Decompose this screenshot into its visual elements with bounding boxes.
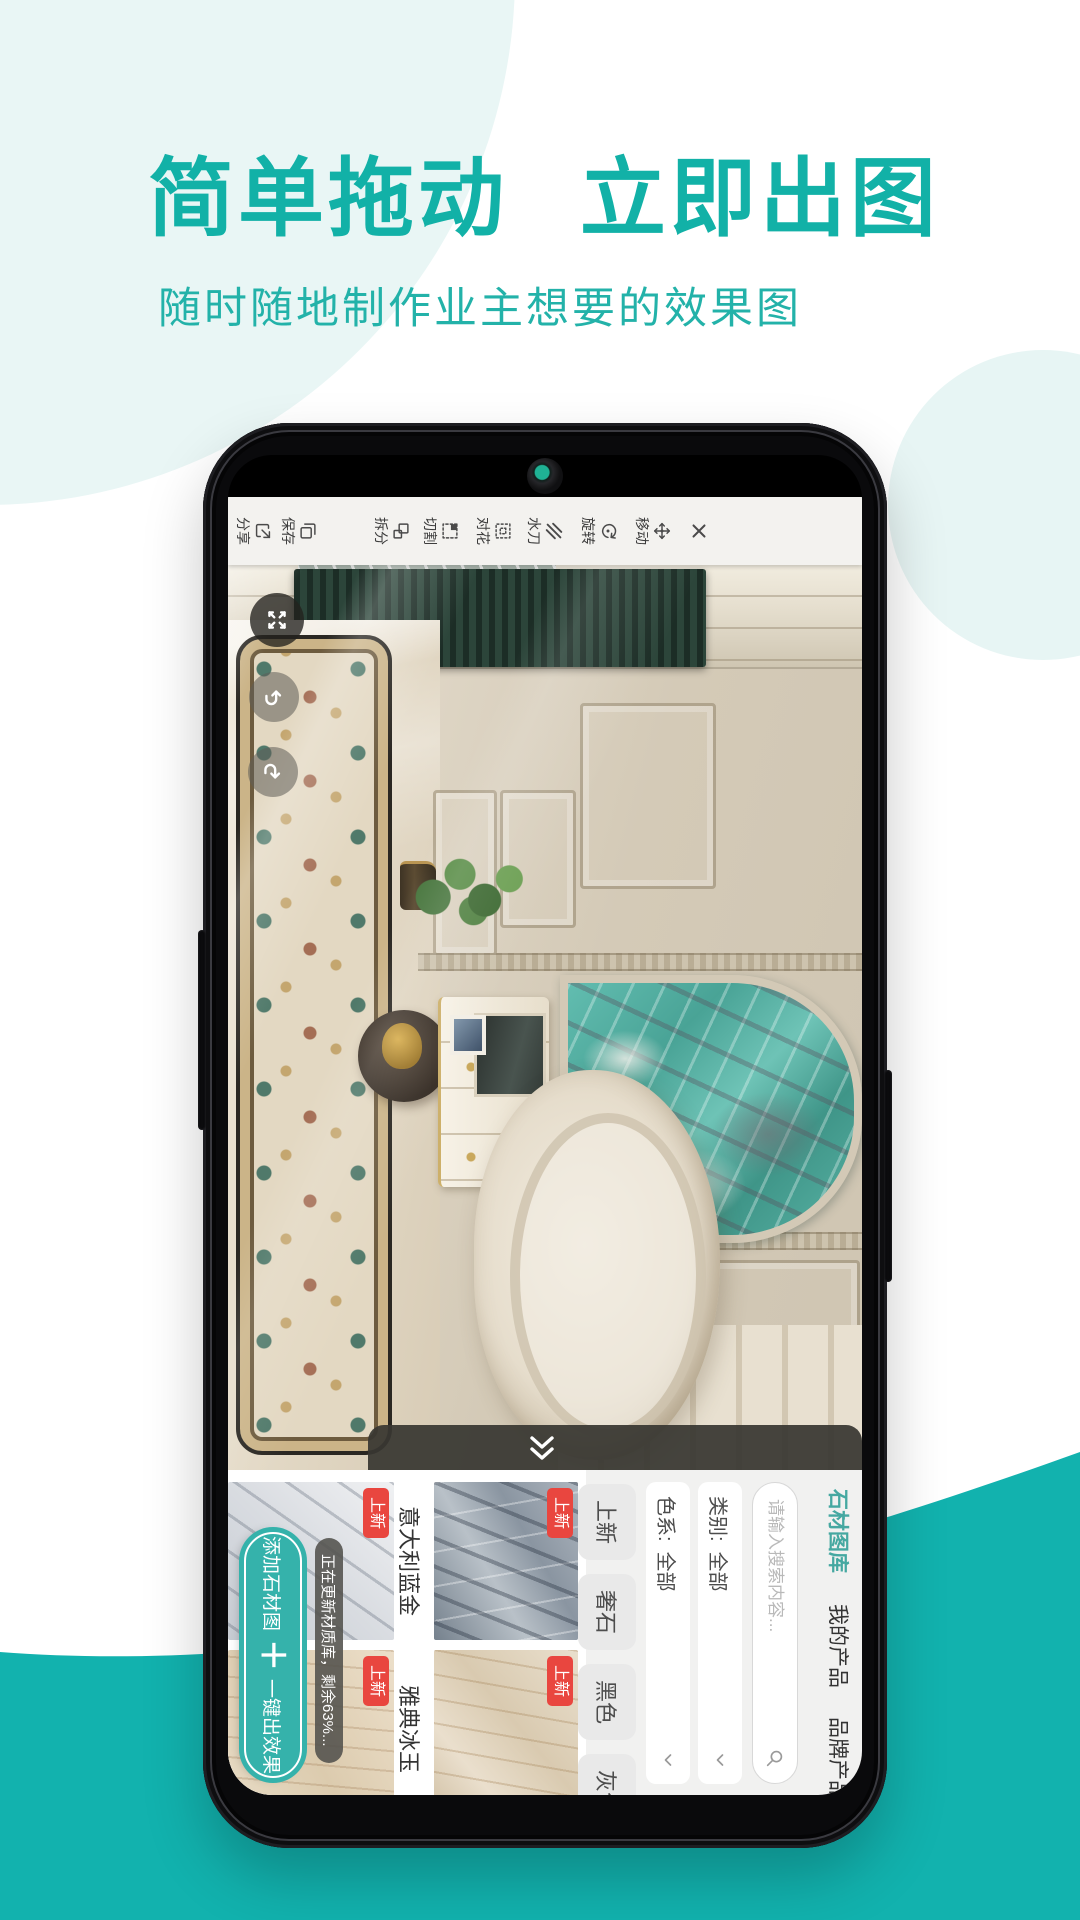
add-stone-label-left: 添加石材图: [260, 1536, 287, 1631]
stone-card[interactable]: 上新: [434, 1482, 578, 1640]
stone-panel: 石材图库 我的产品 品牌产品 类别: [228, 1470, 862, 1795]
app-rotated-layer: 移动 旋转 水刀: [228, 497, 862, 1795]
stone-name: 雅典冰玉: [400, 1650, 426, 1795]
panel-collapse-handle[interactable]: [368, 1425, 862, 1470]
chip-grey[interactable]: 灰色: [578, 1754, 636, 1795]
redo-button[interactable]: [248, 747, 298, 797]
tool-label: 切割: [423, 517, 437, 545]
filter-label: 色系:: [654, 1496, 683, 1542]
split-button[interactable]: 拆分: [370, 497, 416, 565]
tool-label: 对花: [476, 517, 490, 545]
stone-card[interactable]: 上新: [434, 1650, 578, 1795]
volume-button: [198, 930, 206, 1130]
close-button[interactable]: [676, 497, 722, 565]
filter-category[interactable]: 类别: 全部: [698, 1482, 742, 1784]
pattern-dots-icon: [492, 520, 514, 542]
plus-icon: ＋: [257, 1639, 289, 1671]
tab-brand-products[interactable]: 品牌产品: [820, 1713, 854, 1795]
camera-hole: [527, 458, 563, 494]
new-badge: 上新: [547, 1656, 573, 1706]
tool-label: 移动: [635, 517, 649, 545]
rotate-arrow-icon: [597, 520, 619, 542]
undo-button[interactable]: [249, 672, 299, 722]
tab-my-products[interactable]: 我的产品: [820, 1600, 854, 1692]
update-toast: 正在更新材质库，剩余63%...: [315, 1538, 343, 1763]
filter-value: 全部: [706, 1552, 735, 1592]
tool-label: 分享: [236, 517, 250, 545]
filter-value: 全部: [654, 1552, 683, 1592]
search-box: [752, 1482, 798, 1784]
waterjet-button[interactable]: 水刀: [523, 497, 569, 565]
chevron-down-icon: [658, 1750, 678, 1770]
stone-name: 意大利蓝金: [400, 1482, 426, 1640]
share-box-icon: [252, 520, 274, 542]
filter-color[interactable]: 色系: 全部: [646, 1482, 690, 1784]
fullscreen-arrows-icon: [264, 607, 290, 633]
cut-button[interactable]: 切割: [419, 497, 465, 565]
chip-new[interactable]: 上新: [578, 1484, 636, 1560]
split-squares-icon: [390, 520, 412, 542]
phone-frame: 移动 旋转 水刀: [203, 423, 887, 1848]
move-button[interactable]: 移动: [631, 497, 677, 565]
pattern-match-button[interactable]: 对花: [472, 497, 518, 565]
rotate-button[interactable]: 旋转: [577, 497, 623, 565]
close-icon: [688, 520, 710, 542]
page-title: 简单拖动 立即出图: [148, 128, 1048, 253]
undo-arrow-icon: [261, 684, 287, 710]
cut-square-icon: [439, 520, 461, 542]
tab-label: 石材图库: [824, 1489, 854, 1573]
power-button: [884, 1070, 892, 1282]
double-chevron-icon: [524, 1430, 560, 1466]
tool-label: 拆分: [374, 517, 388, 545]
search-input[interactable]: [764, 1497, 786, 1747]
chip-luxury-stone[interactable]: 奢石: [578, 1574, 636, 1650]
edit-toolbar: 移动 旋转 水刀: [228, 497, 862, 565]
search-icon: [764, 1747, 786, 1769]
fullscreen-button[interactable]: [250, 593, 304, 647]
chip-black[interactable]: 黑色: [578, 1664, 636, 1740]
tool-label: 旋转: [581, 517, 595, 545]
tool-label: 保存: [281, 517, 295, 545]
share-button[interactable]: 分享: [232, 497, 278, 565]
filter-label: 类别:: [706, 1496, 735, 1542]
waterjet-lines-icon: [543, 520, 565, 542]
tab-label: 品牌产品: [824, 1717, 854, 1795]
new-badge: 上新: [547, 1488, 573, 1538]
save-copy-icon: [297, 520, 319, 542]
page-subtitle: 随时随地制作业主想要的效果图: [158, 274, 1058, 336]
move-arrows-icon: [651, 520, 673, 542]
new-badge: 上新: [363, 1656, 389, 1706]
new-badge: 上新: [363, 1488, 389, 1538]
save-button[interactable]: 保存: [277, 497, 323, 565]
tool-label: 水刀: [527, 517, 541, 545]
chevron-down-icon: [710, 1750, 730, 1770]
tab-stone-gallery[interactable]: 石材图库: [820, 1485, 854, 1577]
add-stone-button[interactable]: 添加石材图 ＋ 一键出效果: [244, 1532, 302, 1778]
redo-arrow-icon: [260, 759, 286, 785]
tab-label: 我的产品: [824, 1604, 854, 1688]
phone-screen: 移动 旋转 水刀: [228, 455, 862, 1795]
add-stone-label-right: 一键出效果: [260, 1679, 287, 1774]
